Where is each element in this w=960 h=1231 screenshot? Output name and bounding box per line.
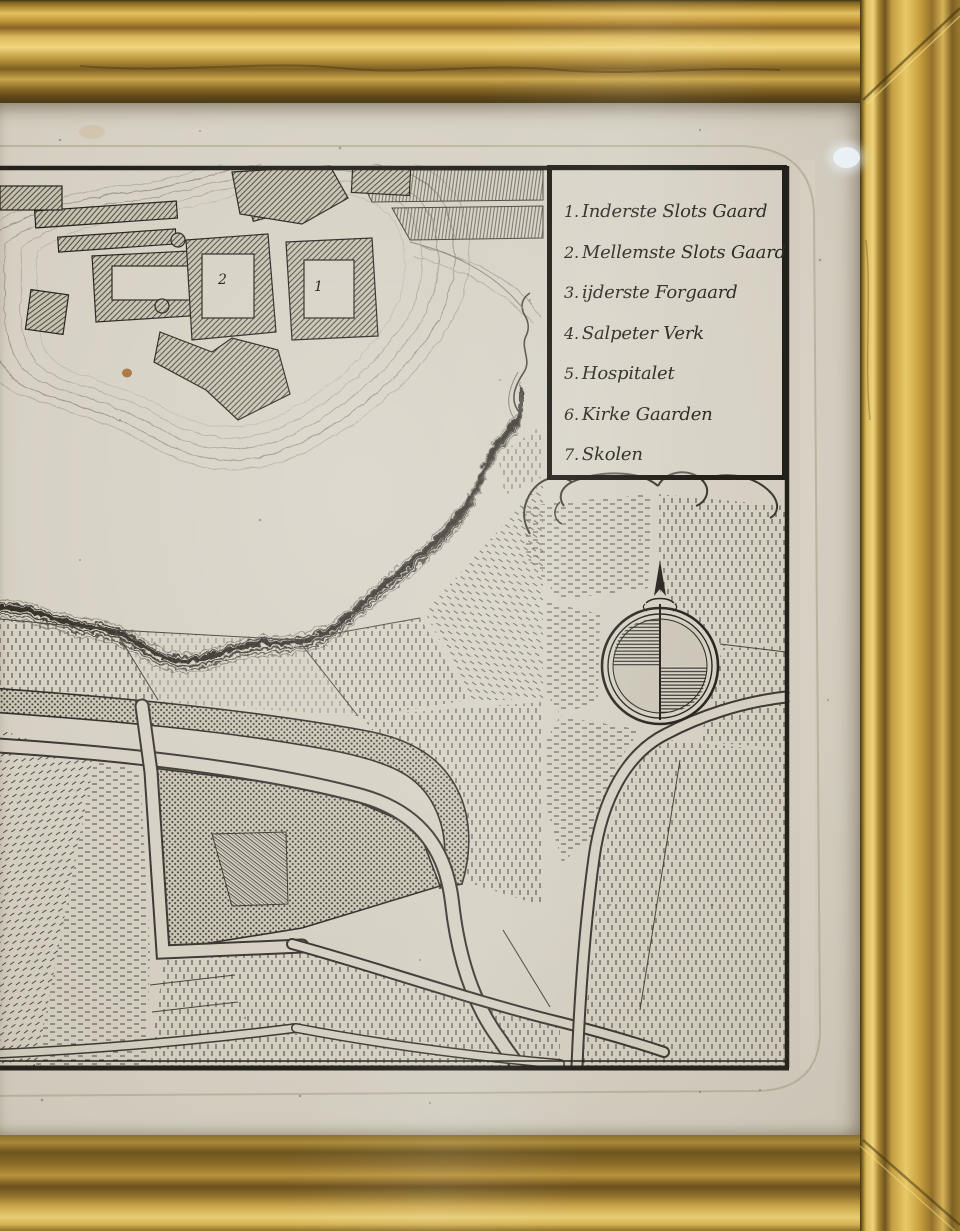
legend-item-number: 2. (564, 233, 579, 274)
legend-item-number: 7. (564, 435, 579, 476)
legend-item: 3.ijderste Forgaard (564, 273, 776, 314)
castle-plan (0, 166, 411, 420)
legend-item-number: 5. (564, 354, 579, 395)
legend-item-label: Mellemste Slots Gaard (582, 242, 786, 263)
legend-item-number: 3. (564, 273, 579, 314)
legend-item-label: Kirke Gaarden (582, 404, 713, 425)
legend-box: 1.Inderste Slots Gaard 2.Mellemste Slots… (547, 165, 787, 480)
legend-item: 1.Inderste Slots Gaard (564, 192, 776, 233)
legend-item: 6.Kirke Gaarden (564, 395, 776, 436)
castle-courtyard-label-1: 1 (314, 279, 323, 295)
legend-item-number: 4. (564, 314, 579, 355)
frame-right-rail (860, 0, 960, 1231)
legend-item: 7.Skolen (564, 435, 776, 476)
castle-courtyard-label-2: 2 (218, 272, 227, 288)
frame-top-rail (0, 0, 960, 103)
legend-item-label: Skolen (582, 444, 643, 465)
legend-item-label: Inderste Slots Gaard (582, 201, 767, 222)
legend-item-label: Salpeter Verk (582, 323, 704, 344)
legend-item-number: 1. (564, 192, 579, 233)
frame-bottom-rail (0, 1135, 960, 1231)
map-engraving (0, 0, 960, 1231)
legend-item-label: ijderste Forgaard (582, 282, 738, 303)
legend-item-number: 6. (564, 395, 579, 436)
legend-item: 4.Salpeter Verk (564, 314, 776, 355)
legend-item: 2.Mellemste Slots Gaard (564, 233, 776, 274)
framed-map-photo: 1.Inderste Slots Gaard 2.Mellemste Slots… (0, 0, 960, 1231)
legend-item-label: Hospitalet (582, 363, 675, 384)
legend-item: 5.Hospitalet (564, 354, 776, 395)
